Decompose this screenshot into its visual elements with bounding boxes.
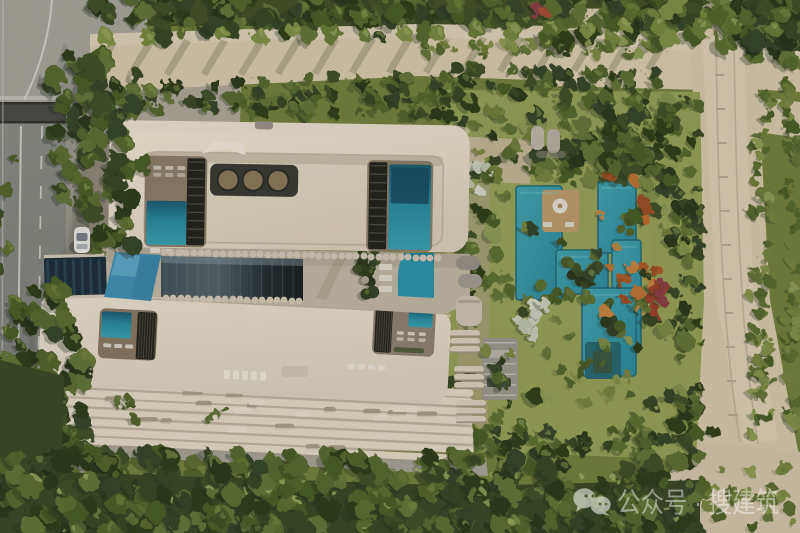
svg-text:公众号 · 搜建筑: 公众号 · 搜建筑 — [617, 487, 779, 518]
